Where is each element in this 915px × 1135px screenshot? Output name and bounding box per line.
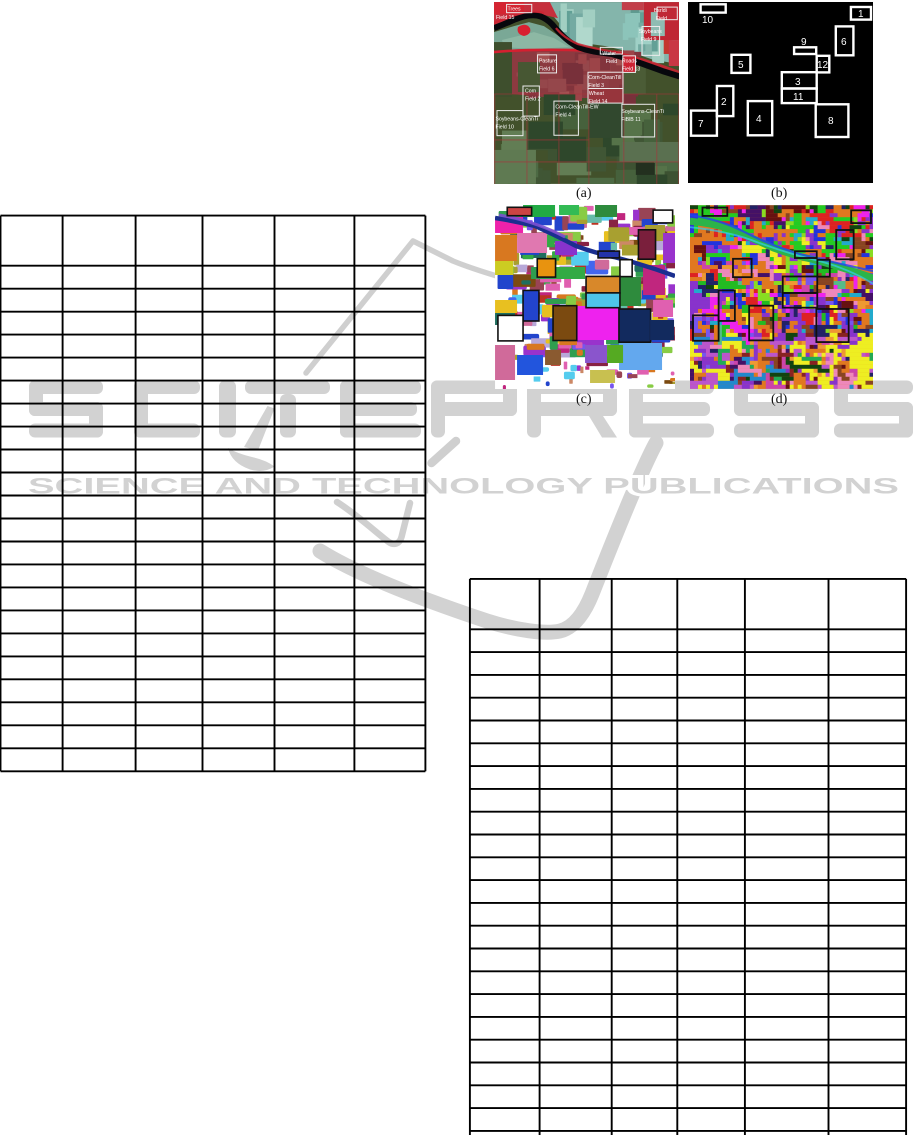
svg-text:Field 4: Field 4	[555, 112, 571, 118]
svg-text:11: 11	[793, 92, 804, 103]
svg-text:Field 15: Field 15	[496, 15, 515, 21]
svg-text:Field 9: Field 9	[641, 37, 657, 43]
svg-text:10: 10	[702, 15, 714, 26]
svg-text:Field 3: Field 3	[588, 83, 604, 89]
svg-text:9: 9	[801, 37, 807, 48]
svg-text:Soybeans-CleanTi: Soybeans-CleanTi	[621, 109, 663, 115]
svg-text:2: 2	[721, 97, 727, 108]
svg-text:Trees: Trees	[507, 6, 520, 12]
svg-text:Pasture: Pasture	[539, 58, 557, 64]
svg-text:FiBlB 11: FiBlB 11	[621, 117, 640, 123]
svg-text:Corn-CleanTill: Corn-CleanTill	[588, 75, 621, 81]
svg-text:1: 1	[858, 9, 864, 20]
svg-text:6: 6	[841, 37, 847, 48]
svg-text:Field 13: Field 13	[622, 66, 641, 72]
svg-text:3: 3	[795, 77, 801, 88]
svg-text:Field 10: Field 10	[495, 124, 514, 130]
svg-text:5: 5	[738, 60, 744, 71]
svg-text:Field 2: Field 2	[525, 96, 541, 102]
svg-text:Bsrldi: Bsrldi	[654, 8, 667, 14]
svg-text:Water: Water	[602, 51, 616, 57]
svg-text:Corn-CleanTill-EW: Corn-CleanTill-EW	[555, 104, 598, 110]
svg-text:Field 6: Field 6	[539, 66, 555, 72]
svg-text:Soybeans-CleanTi: Soybeans-CleanTi	[495, 116, 537, 122]
svg-text:Corn: Corn	[525, 88, 536, 94]
svg-text:Soybeans: Soybeans	[639, 29, 662, 35]
svg-text:Field: Field	[656, 16, 667, 22]
svg-text:4: 4	[756, 114, 762, 125]
svg-text:Wheat: Wheat	[589, 91, 605, 97]
svg-text:7: 7	[698, 119, 704, 130]
svg-text:8: 8	[828, 116, 834, 127]
svg-text:Field: Field	[606, 59, 617, 65]
svg-text:Roads: Roads	[622, 58, 637, 64]
svg-text:12: 12	[817, 60, 829, 71]
